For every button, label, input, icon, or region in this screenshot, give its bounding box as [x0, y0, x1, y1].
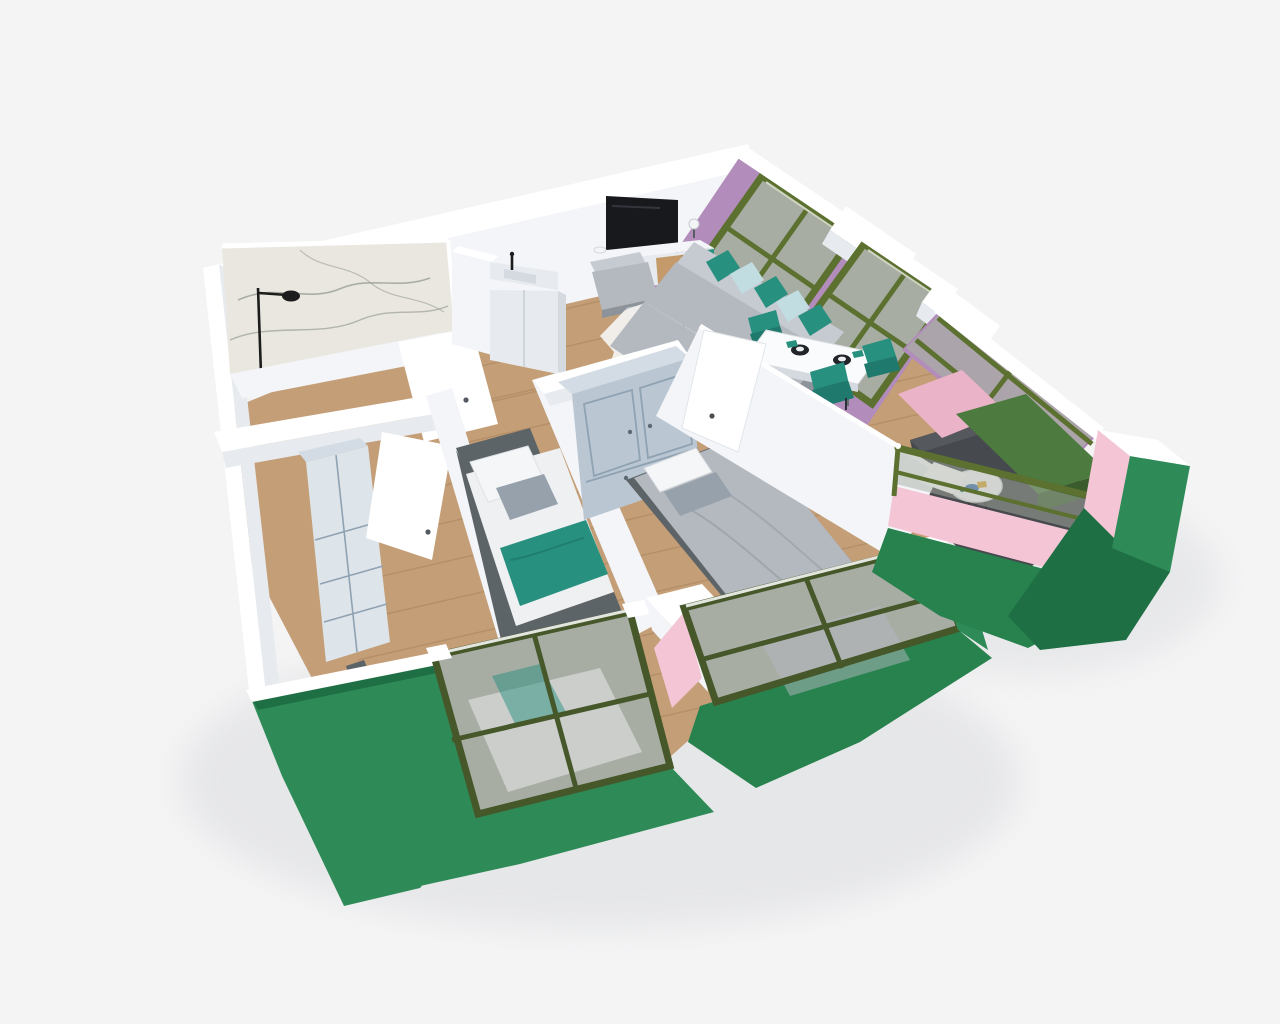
door-handle: [463, 397, 468, 402]
door-handle: [425, 529, 430, 534]
wardrobe-knob: [648, 424, 652, 428]
faucet-head: [510, 252, 514, 256]
floorplan-stage: [0, 0, 1280, 1024]
cabinet-side: [558, 291, 566, 374]
tall-cabinet: [452, 252, 492, 355]
plate-inner: [796, 347, 804, 352]
post-cap: [895, 443, 901, 449]
decor-bowl: [594, 247, 606, 253]
floorplan-render: [0, 0, 1280, 1024]
wardrobe-knob: [628, 430, 632, 434]
shower-head: [282, 291, 300, 302]
plate-inner: [838, 357, 846, 362]
door-handle: [709, 413, 714, 418]
table-lamp: [689, 219, 699, 229]
